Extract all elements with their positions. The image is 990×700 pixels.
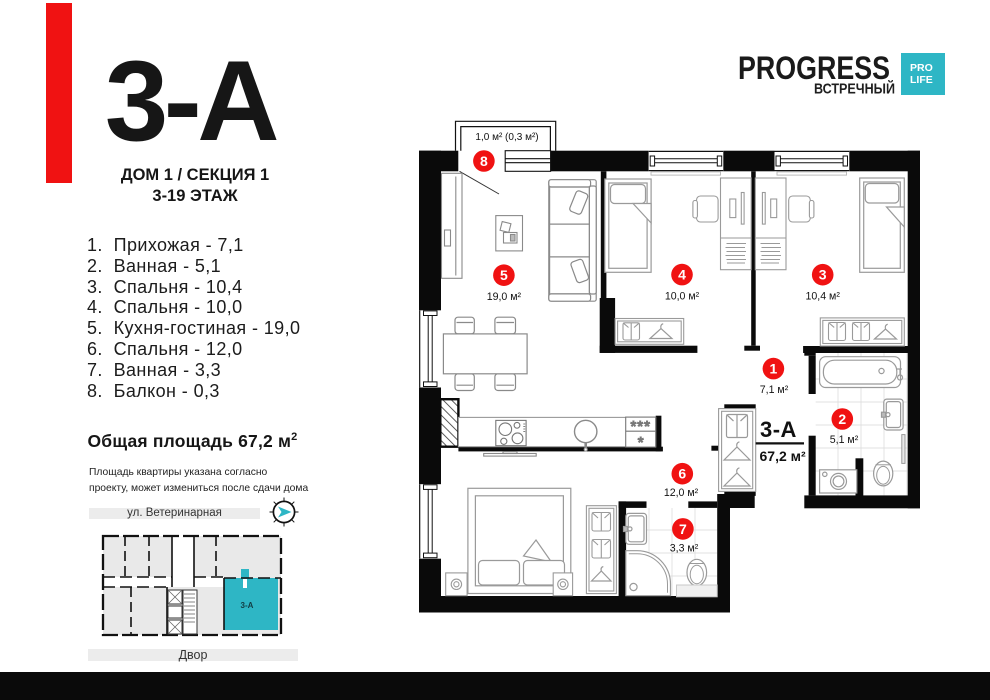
svg-text:3: 3	[819, 267, 827, 283]
svg-text:67,2 м²: 67,2 м²	[760, 448, 806, 464]
svg-text:*: *	[638, 434, 644, 451]
svg-text:7: 7	[679, 521, 687, 537]
svg-text:7,1 м²: 7,1 м²	[760, 384, 789, 396]
svg-text:5: 5	[500, 267, 508, 283]
svg-text:10,4 м²: 10,4 м²	[806, 291, 841, 303]
svg-text:4: 4	[678, 267, 686, 283]
svg-text:10,0 м²: 10,0 м²	[665, 291, 700, 303]
svg-text:6: 6	[678, 466, 686, 482]
svg-text:12,0 м²: 12,0 м²	[664, 487, 699, 499]
svg-text:3-А: 3-А	[760, 417, 797, 442]
svg-text:1: 1	[770, 361, 778, 377]
svg-text:***: ***	[630, 418, 651, 435]
svg-text:8: 8	[480, 153, 488, 169]
svg-text:5,1 м²: 5,1 м²	[830, 434, 859, 446]
svg-text:2: 2	[838, 411, 846, 427]
svg-text:1,0 м² (0,3 м²): 1,0 м² (0,3 м²)	[475, 132, 538, 143]
svg-text:3-А: 3-А	[241, 601, 254, 610]
svg-text:19,0 м²: 19,0 м²	[487, 291, 522, 303]
svg-text:3,3 м²: 3,3 м²	[670, 543, 699, 555]
svg-text:ВСТРЕЧНЫЙ: ВСТРЕЧНЫЙ	[814, 80, 895, 98]
